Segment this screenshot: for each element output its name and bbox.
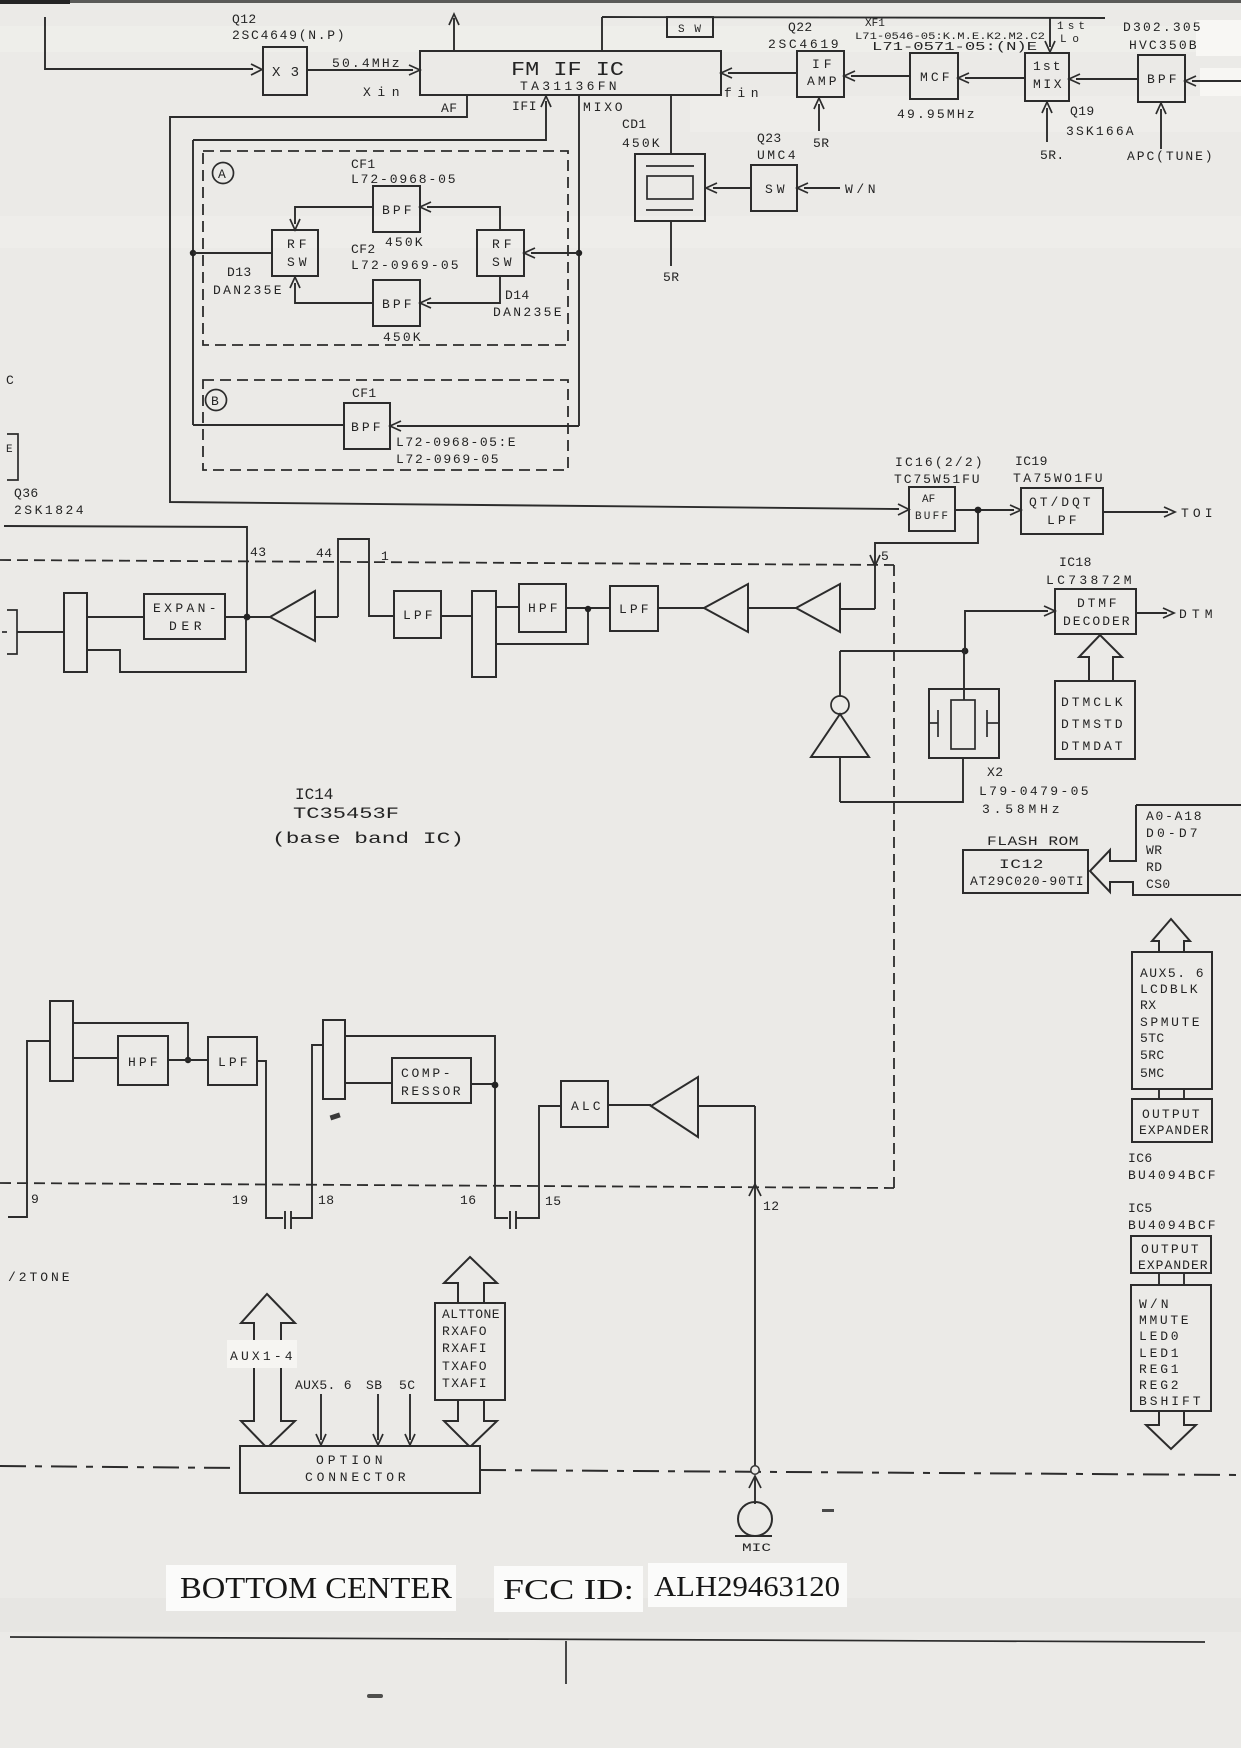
svg-text:LPF: LPF — [1047, 513, 1077, 528]
svg-text:5R.: 5R. — [1040, 148, 1065, 163]
svg-text:50.4MHz: 50.4MHz — [332, 56, 400, 71]
svg-text:TA31136FN: TA31136FN — [520, 79, 617, 94]
svg-text:fin: fin — [724, 86, 759, 101]
svg-text:RD: RD — [1146, 860, 1162, 875]
svg-text:(base band IC): (base band IC) — [272, 830, 464, 848]
svg-text:D302.305: D302.305 — [1123, 20, 1201, 35]
svg-text:43: 43 — [250, 545, 266, 560]
svg-text:2SC4619: 2SC4619 — [768, 37, 839, 52]
svg-text:ALTTONE: ALTTONE — [442, 1307, 500, 1322]
svg-text:EXPANDER: EXPANDER — [1139, 1123, 1209, 1138]
svg-text:Q23: Q23 — [757, 131, 782, 146]
svg-text:FLASH ROM: FLASH ROM — [987, 834, 1079, 849]
svg-text:EXPANDER: EXPANDER — [1138, 1258, 1208, 1273]
svg-text:D13: D13 — [227, 265, 252, 280]
svg-text:BU4094BCF: BU4094BCF — [1128, 1168, 1216, 1183]
svg-text:L79-0479-05: L79-0479-05 — [979, 784, 1089, 799]
svg-text:L72-0969-05: L72-0969-05 — [351, 258, 459, 273]
svg-text:IC18: IC18 — [1059, 555, 1092, 570]
svg-text:CD1: CD1 — [622, 117, 647, 132]
svg-text:DTM: DTM — [1179, 607, 1213, 622]
svg-text:49.95MHz: 49.95MHz — [897, 107, 975, 122]
svg-text:E: E — [6, 444, 13, 456]
svg-text:CF2: CF2 — [351, 242, 376, 257]
svg-text:L72-0968-05:E: L72-0968-05:E — [396, 435, 516, 450]
svg-text:Q22: Q22 — [788, 20, 813, 35]
svg-text:A: A — [218, 167, 226, 182]
svg-text:MMUTE: MMUTE — [1139, 1313, 1189, 1328]
svg-text:9: 9 — [31, 1192, 39, 1207]
svg-text:LPF: LPF — [218, 1055, 248, 1070]
svg-text:W/N: W/N — [845, 182, 876, 197]
svg-text:WR: WR — [1146, 843, 1162, 858]
svg-text:2SK1824: 2SK1824 — [14, 503, 84, 518]
svg-text:BPF: BPF — [382, 203, 412, 218]
svg-text:X2: X2 — [987, 765, 1003, 780]
svg-text:Q19: Q19 — [1070, 104, 1095, 119]
svg-text:Xin: Xin — [363, 85, 400, 100]
svg-text:15: 15 — [545, 1194, 561, 1209]
svg-text:450K: 450K — [383, 330, 421, 345]
svg-text:AT29C020-90TI: AT29C020-90TI — [970, 874, 1084, 889]
svg-text:1st: 1st — [1057, 21, 1085, 33]
svg-text:D14: D14 — [505, 288, 530, 303]
svg-text:LPF: LPF — [403, 608, 433, 623]
svg-text:5TC: 5TC — [1140, 1031, 1165, 1046]
svg-text:L72-0968-05: L72-0968-05 — [351, 172, 456, 187]
svg-text:ALH29463120: ALH29463120 — [654, 1571, 840, 1603]
svg-text:TXAFI: TXAFI — [442, 1376, 487, 1391]
svg-text:AMP: AMP — [807, 74, 837, 89]
svg-text:CF1: CF1 — [352, 386, 377, 401]
svg-text:IC19: IC19 — [1015, 454, 1048, 469]
svg-text:AF: AF — [441, 101, 457, 116]
svg-text:BOTTOM CENTER: BOTTOM CENTER — [180, 1570, 452, 1605]
svg-text:BPF: BPF — [382, 297, 412, 312]
svg-text:RXAFO: RXAFO — [442, 1324, 487, 1339]
svg-text:DER: DER — [169, 619, 202, 634]
svg-text:MIC: MIC — [742, 1543, 772, 1555]
svg-text:SB: SB — [366, 1378, 382, 1393]
svg-text:BU4094BCF: BU4094BCF — [1128, 1218, 1216, 1233]
svg-text:5R: 5R — [663, 270, 679, 285]
svg-text:44: 44 — [316, 546, 332, 561]
svg-text:MIX: MIX — [1033, 77, 1062, 92]
svg-text:5: 5 — [881, 549, 889, 564]
svg-text:TC75W51FU: TC75W51FU — [894, 472, 980, 487]
svg-text:APC(TUNE): APC(TUNE) — [1127, 149, 1213, 164]
svg-text:18: 18 — [318, 1193, 334, 1208]
svg-text:Q12: Q12 — [232, 12, 257, 27]
svg-text:IC14: IC14 — [295, 786, 333, 804]
svg-text:IC16(2/2): IC16(2/2) — [895, 455, 983, 470]
svg-text:AF: AF — [922, 494, 935, 506]
svg-text:RX: RX — [1140, 998, 1156, 1013]
svg-text:1st: 1st — [1033, 59, 1061, 74]
svg-text:450K: 450K — [385, 235, 423, 250]
svg-text:IC6: IC6 — [1128, 1151, 1153, 1166]
svg-text:D0-D7: D0-D7 — [1146, 826, 1198, 841]
svg-text:5C: 5C — [399, 1378, 415, 1393]
svg-text:Q36: Q36 — [14, 486, 39, 501]
svg-text:3.58MHz: 3.58MHz — [982, 802, 1060, 817]
svg-text:TC35453F: TC35453F — [293, 805, 399, 823]
svg-text:12: 12 — [763, 1199, 779, 1214]
svg-text:DAN235E: DAN235E — [493, 305, 562, 320]
svg-text:W/N: W/N — [1139, 1297, 1169, 1312]
svg-text:BPF: BPF — [351, 420, 381, 435]
svg-text:COMP-: COMP- — [401, 1066, 451, 1081]
svg-text:CS0: CS0 — [1146, 877, 1171, 892]
svg-text:C: C — [6, 373, 14, 388]
svg-text:5R: 5R — [813, 136, 829, 151]
svg-text:L71-0571-05:(N)E: L71-0571-05:(N)E — [872, 40, 1037, 54]
svg-text:TOI: TOI — [1181, 506, 1213, 521]
svg-text:AUX5. 6: AUX5. 6 — [295, 1378, 352, 1393]
svg-text:DAN235E: DAN235E — [213, 283, 282, 298]
svg-text:HPF: HPF — [128, 1055, 158, 1070]
svg-text:AUX5. 6: AUX5. 6 — [1140, 966, 1204, 981]
svg-text:3SK166A: 3SK166A — [1066, 124, 1134, 139]
svg-text:TXAFO: TXAFO — [442, 1359, 487, 1374]
svg-text:IC5: IC5 — [1128, 1201, 1153, 1216]
svg-text:MCF: MCF — [920, 70, 950, 85]
svg-text:TA75WO1FU: TA75WO1FU — [1013, 471, 1103, 486]
svg-text:16: 16 — [460, 1193, 476, 1208]
svg-text:5MC: 5MC — [1140, 1066, 1165, 1081]
svg-text:B: B — [211, 394, 219, 409]
svg-text:ALC: ALC — [571, 1099, 601, 1114]
svg-text:FM IF IC: FM IF IC — [511, 59, 624, 81]
svg-text:IFI: IFI — [512, 99, 537, 114]
svg-text:450K: 450K — [622, 136, 660, 151]
svg-text:HVC350B: HVC350B — [1129, 38, 1197, 53]
svg-text:5RC: 5RC — [1140, 1048, 1165, 1063]
svg-text:RXAFI: RXAFI — [442, 1341, 487, 1356]
svg-text:HPF: HPF — [528, 601, 558, 616]
svg-text:IC12: IC12 — [999, 857, 1044, 872]
svg-text:FCC ID:: FCC ID: — [503, 1574, 634, 1606]
svg-text:BPF: BPF — [1147, 72, 1177, 87]
svg-text:19: 19 — [232, 1193, 248, 1208]
svg-text:XF1: XF1 — [865, 18, 885, 30]
svg-text:1: 1 — [381, 549, 389, 564]
svg-text:L72-0969-05: L72-0969-05 — [396, 452, 499, 467]
svg-text:CF1: CF1 — [351, 157, 376, 172]
svg-text:2SC4649(N.P): 2SC4649(N.P) — [232, 28, 345, 43]
svg-text:LPF: LPF — [619, 602, 649, 617]
svg-text:CONNECTOR: CONNECTOR — [305, 1470, 406, 1485]
svg-text:DECODER: DECODER — [1063, 614, 1130, 629]
